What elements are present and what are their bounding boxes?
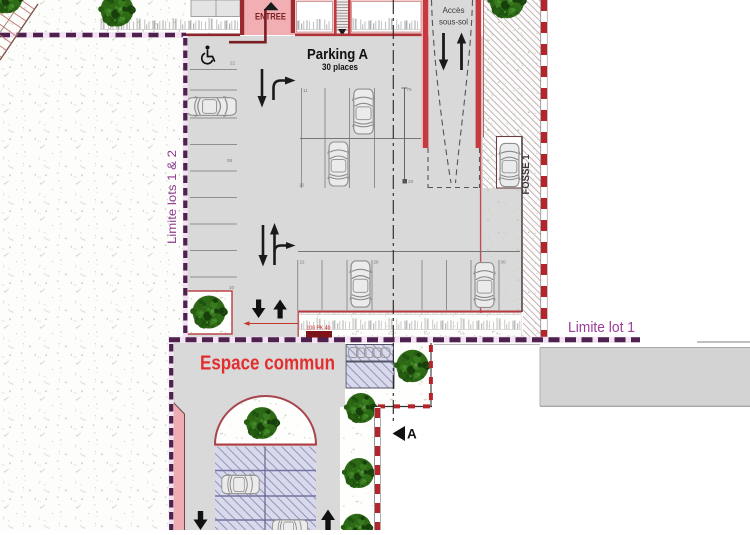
svg-text:Limite lot 1: Limite lot 1 [568,320,635,336]
svg-text:28: 28 [408,179,414,184]
svg-text:Accès: Accès [443,5,465,15]
svg-text:22: 22 [300,260,306,265]
svg-text:A: A [407,427,417,442]
svg-text:30 places: 30 places [322,62,358,73]
svg-text:11: 11 [303,88,308,93]
svg-text:Parking A: Parking A [307,47,368,63]
svg-text:ENTREE: ENTREE [255,12,286,22]
svg-text:75: 75 [407,87,413,92]
svg-text:sous-sol: sous-sol [439,17,468,27]
svg-text:22: 22 [230,61,236,66]
svg-text:10: 10 [229,285,235,290]
svg-text:Espace commun: Espace commun [200,353,335,375]
svg-text:16: 16 [299,183,305,188]
svg-text:100 PK 40: 100 PK 40 [307,326,331,332]
svg-text:30: 30 [501,260,507,265]
svg-text:26: 26 [374,260,380,265]
svg-text:08: 08 [227,158,233,163]
svg-text:Limite lots 1 & 2: Limite lots 1 & 2 [165,150,179,244]
svg-text:FOSSE 1: FOSSE 1 [521,154,532,194]
